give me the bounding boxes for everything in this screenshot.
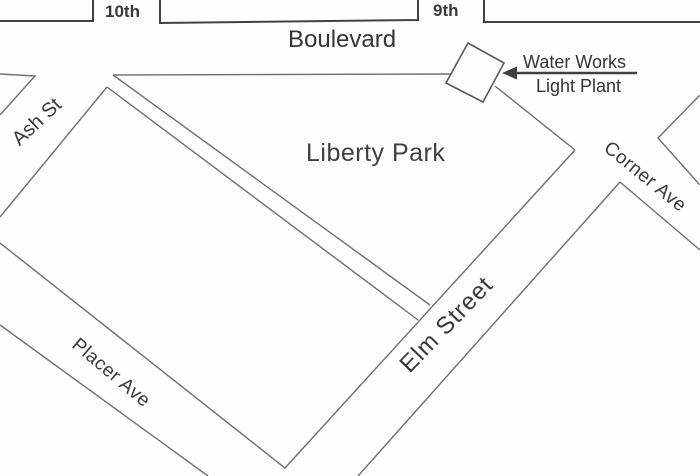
arrow-head (502, 67, 517, 80)
top-block-middle-edge (160, 0, 418, 23)
corner-ave-northeast-block-corner (658, 95, 700, 185)
annotation-light-plant: Light Plant (536, 77, 621, 95)
elm-west-placer-northeast-line (0, 150, 575, 468)
street-label-10th: 10th (105, 3, 140, 20)
placer-ave-southwest-line (0, 325, 208, 476)
annotation-water-works: Water Works (523, 53, 626, 71)
park-label: Liberty Park (306, 141, 445, 166)
park-north-boundary-boulevard-south-line (113, 74, 451, 75)
park-southwest-boundary-upper-line (113, 75, 430, 305)
top-block-right-edge (484, 0, 700, 22)
block-northeast-boundary-lower-line (107, 87, 418, 320)
top-block-left-edge (0, 0, 93, 21)
street-label-9th: 9th (433, 2, 459, 19)
street-map-canvas: 10th 9th Boulevard Liberty Park Water Wo… (0, 0, 700, 476)
water-works-building-marker (446, 43, 504, 102)
ash-st-northwest-corner-wedge (0, 74, 35, 115)
elm-street-east-line (358, 182, 620, 476)
street-label-boulevard: Boulevard (288, 28, 396, 52)
